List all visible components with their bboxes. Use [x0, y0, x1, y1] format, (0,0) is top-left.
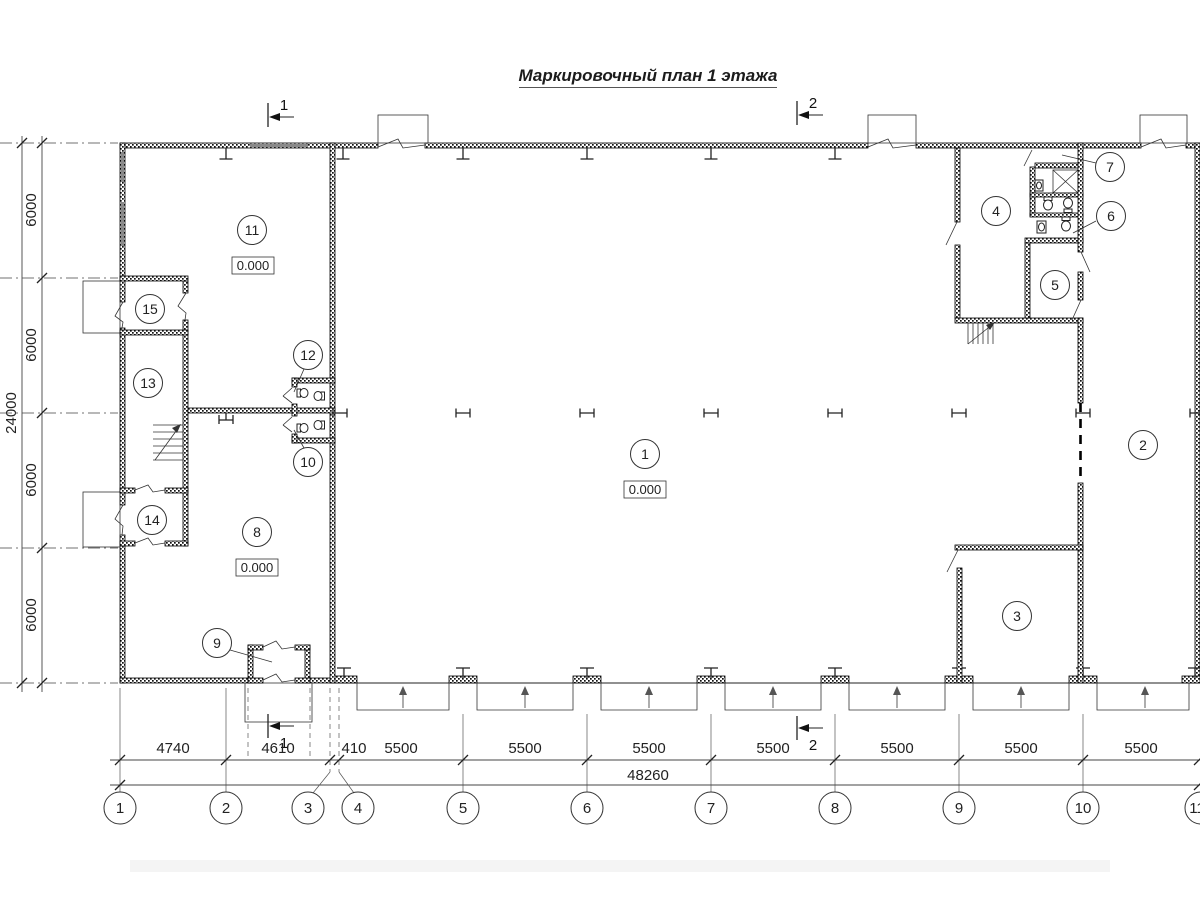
svg-text:10: 10	[300, 454, 316, 470]
dim-5500-5: 5500	[880, 740, 913, 757]
dim-total-24000: 24000	[3, 392, 20, 434]
svg-text:14: 14	[144, 512, 160, 528]
grid-bubble-3: 3	[292, 792, 324, 824]
svg-text:1: 1	[641, 446, 649, 462]
column-icons-topwall	[220, 148, 842, 159]
grid-bubble-11: 11	[1185, 792, 1200, 824]
svg-text:8: 8	[831, 800, 839, 817]
porches	[83, 115, 1187, 722]
outside-steps-icon	[968, 322, 995, 344]
dim-410: 410	[341, 740, 366, 757]
room-tags: 1 2 3 4 5 6 7 8 9 10 11 12 13 14 15	[134, 153, 1158, 663]
elevation-room1: 0.000	[624, 481, 666, 498]
section-mark-1-top: 1	[268, 97, 294, 127]
room-tag-1: 1	[631, 440, 660, 469]
svg-text:12: 12	[300, 347, 316, 363]
svg-text:8: 8	[253, 524, 261, 540]
dim-5500-7: 5500	[1124, 740, 1157, 757]
left-dimensions: 6000 6000 6000 6000 24000	[3, 136, 47, 692]
elevation-room11: 0.000	[232, 257, 274, 274]
dim-5500-2: 5500	[508, 740, 541, 757]
room-tag-4: 4	[982, 197, 1011, 226]
dim-6000-2: 6000	[23, 328, 40, 361]
grid-bubble-8: 8	[819, 792, 851, 824]
svg-text:3: 3	[1013, 608, 1021, 624]
svg-text:11: 11	[1189, 800, 1200, 817]
grid-bubble-2: 2	[210, 792, 242, 824]
svg-text:2: 2	[222, 800, 230, 817]
column-icons-midline	[219, 409, 1200, 425]
room-tag-2: 2	[1129, 431, 1158, 460]
svg-text:2: 2	[809, 737, 817, 754]
svg-text:7: 7	[707, 800, 715, 817]
bottom-dimensions: 4740 4610 410 5500 5500 5500 5500 5500 5…	[110, 688, 1200, 793]
svg-text:2: 2	[809, 95, 817, 112]
svg-text:11: 11	[245, 222, 260, 238]
elevation-marks: 0.000 0.000 0.000	[232, 257, 666, 576]
svg-text:2: 2	[1139, 437, 1147, 453]
dim-6000-1: 6000	[23, 193, 40, 226]
svg-text:0.000: 0.000	[629, 482, 662, 497]
room-tag-13: 13	[134, 369, 163, 398]
grid-bubble-10: 10	[1067, 792, 1099, 824]
room-tag-11: 11	[238, 216, 267, 245]
grid-bubble-7: 7	[695, 792, 727, 824]
svg-text:0.000: 0.000	[237, 258, 270, 273]
svg-text:7: 7	[1106, 159, 1114, 175]
svg-text:1: 1	[116, 800, 124, 817]
svg-text:15: 15	[142, 301, 158, 317]
dim-4740: 4740	[156, 740, 189, 757]
room-tag-3: 3	[1003, 602, 1032, 631]
svg-text:5: 5	[1051, 277, 1059, 293]
dim-6000-3: 6000	[23, 463, 40, 496]
grid-bubble-6: 6	[571, 792, 603, 824]
svg-text:13: 13	[140, 375, 156, 391]
svg-text:10: 10	[1075, 800, 1092, 817]
room-tag-10: 10	[294, 430, 323, 477]
floor-plan-drawing: 1 1 2 2 1 2 3 4 5 6 7 8	[0, 0, 1200, 900]
svg-text:1: 1	[280, 97, 288, 114]
dim-total-48260: 48260	[627, 767, 669, 784]
dim-5500-3: 5500	[632, 740, 665, 757]
grid-bubble-9: 9	[943, 792, 975, 824]
room-tag-8: 8	[243, 518, 272, 547]
svg-text:4: 4	[354, 800, 362, 817]
dim-5500-6: 5500	[1004, 740, 1037, 757]
floor-plan-sheet: Маркировочный план 1 этажа	[0, 0, 1200, 900]
room-tag-14: 14	[138, 506, 167, 535]
dim-5500-4: 5500	[756, 740, 789, 757]
section-mark-2-top: 2	[797, 95, 823, 125]
room-tag-5: 5	[1041, 271, 1070, 300]
svg-text:0.000: 0.000	[241, 560, 274, 575]
dim-6000-4: 6000	[23, 598, 40, 631]
scan-artifact	[130, 860, 1110, 872]
entry-arrow-icon	[399, 686, 1149, 708]
dim-4610: 4610	[261, 740, 294, 757]
svg-text:3: 3	[304, 800, 312, 817]
svg-text:6: 6	[583, 800, 591, 817]
room-tag-15: 15	[136, 295, 165, 324]
bottom-edge-piers	[330, 668, 1200, 710]
svg-text:6: 6	[1107, 208, 1115, 224]
left-block-walls	[120, 143, 335, 683]
elevation-room8: 0.000	[236, 559, 278, 576]
svg-text:9: 9	[955, 800, 963, 817]
svg-text:5: 5	[459, 800, 467, 817]
stairs-icon	[153, 424, 183, 460]
grid-bubble-4: 4	[342, 792, 374, 824]
dim-5500-1: 5500	[384, 740, 417, 757]
room-tag-12: 12	[294, 341, 323, 393]
loading-ramps	[357, 683, 1189, 710]
section-mark-2-bottom: 2	[797, 716, 823, 754]
grid-bubbles: 1 2 3 4 5 6 7 8 9 10 11	[104, 792, 1200, 824]
svg-text:4: 4	[992, 203, 1000, 219]
grid-bubble-1: 1	[104, 792, 136, 824]
grid-bubble-5: 5	[447, 792, 479, 824]
svg-text:9: 9	[213, 635, 221, 651]
